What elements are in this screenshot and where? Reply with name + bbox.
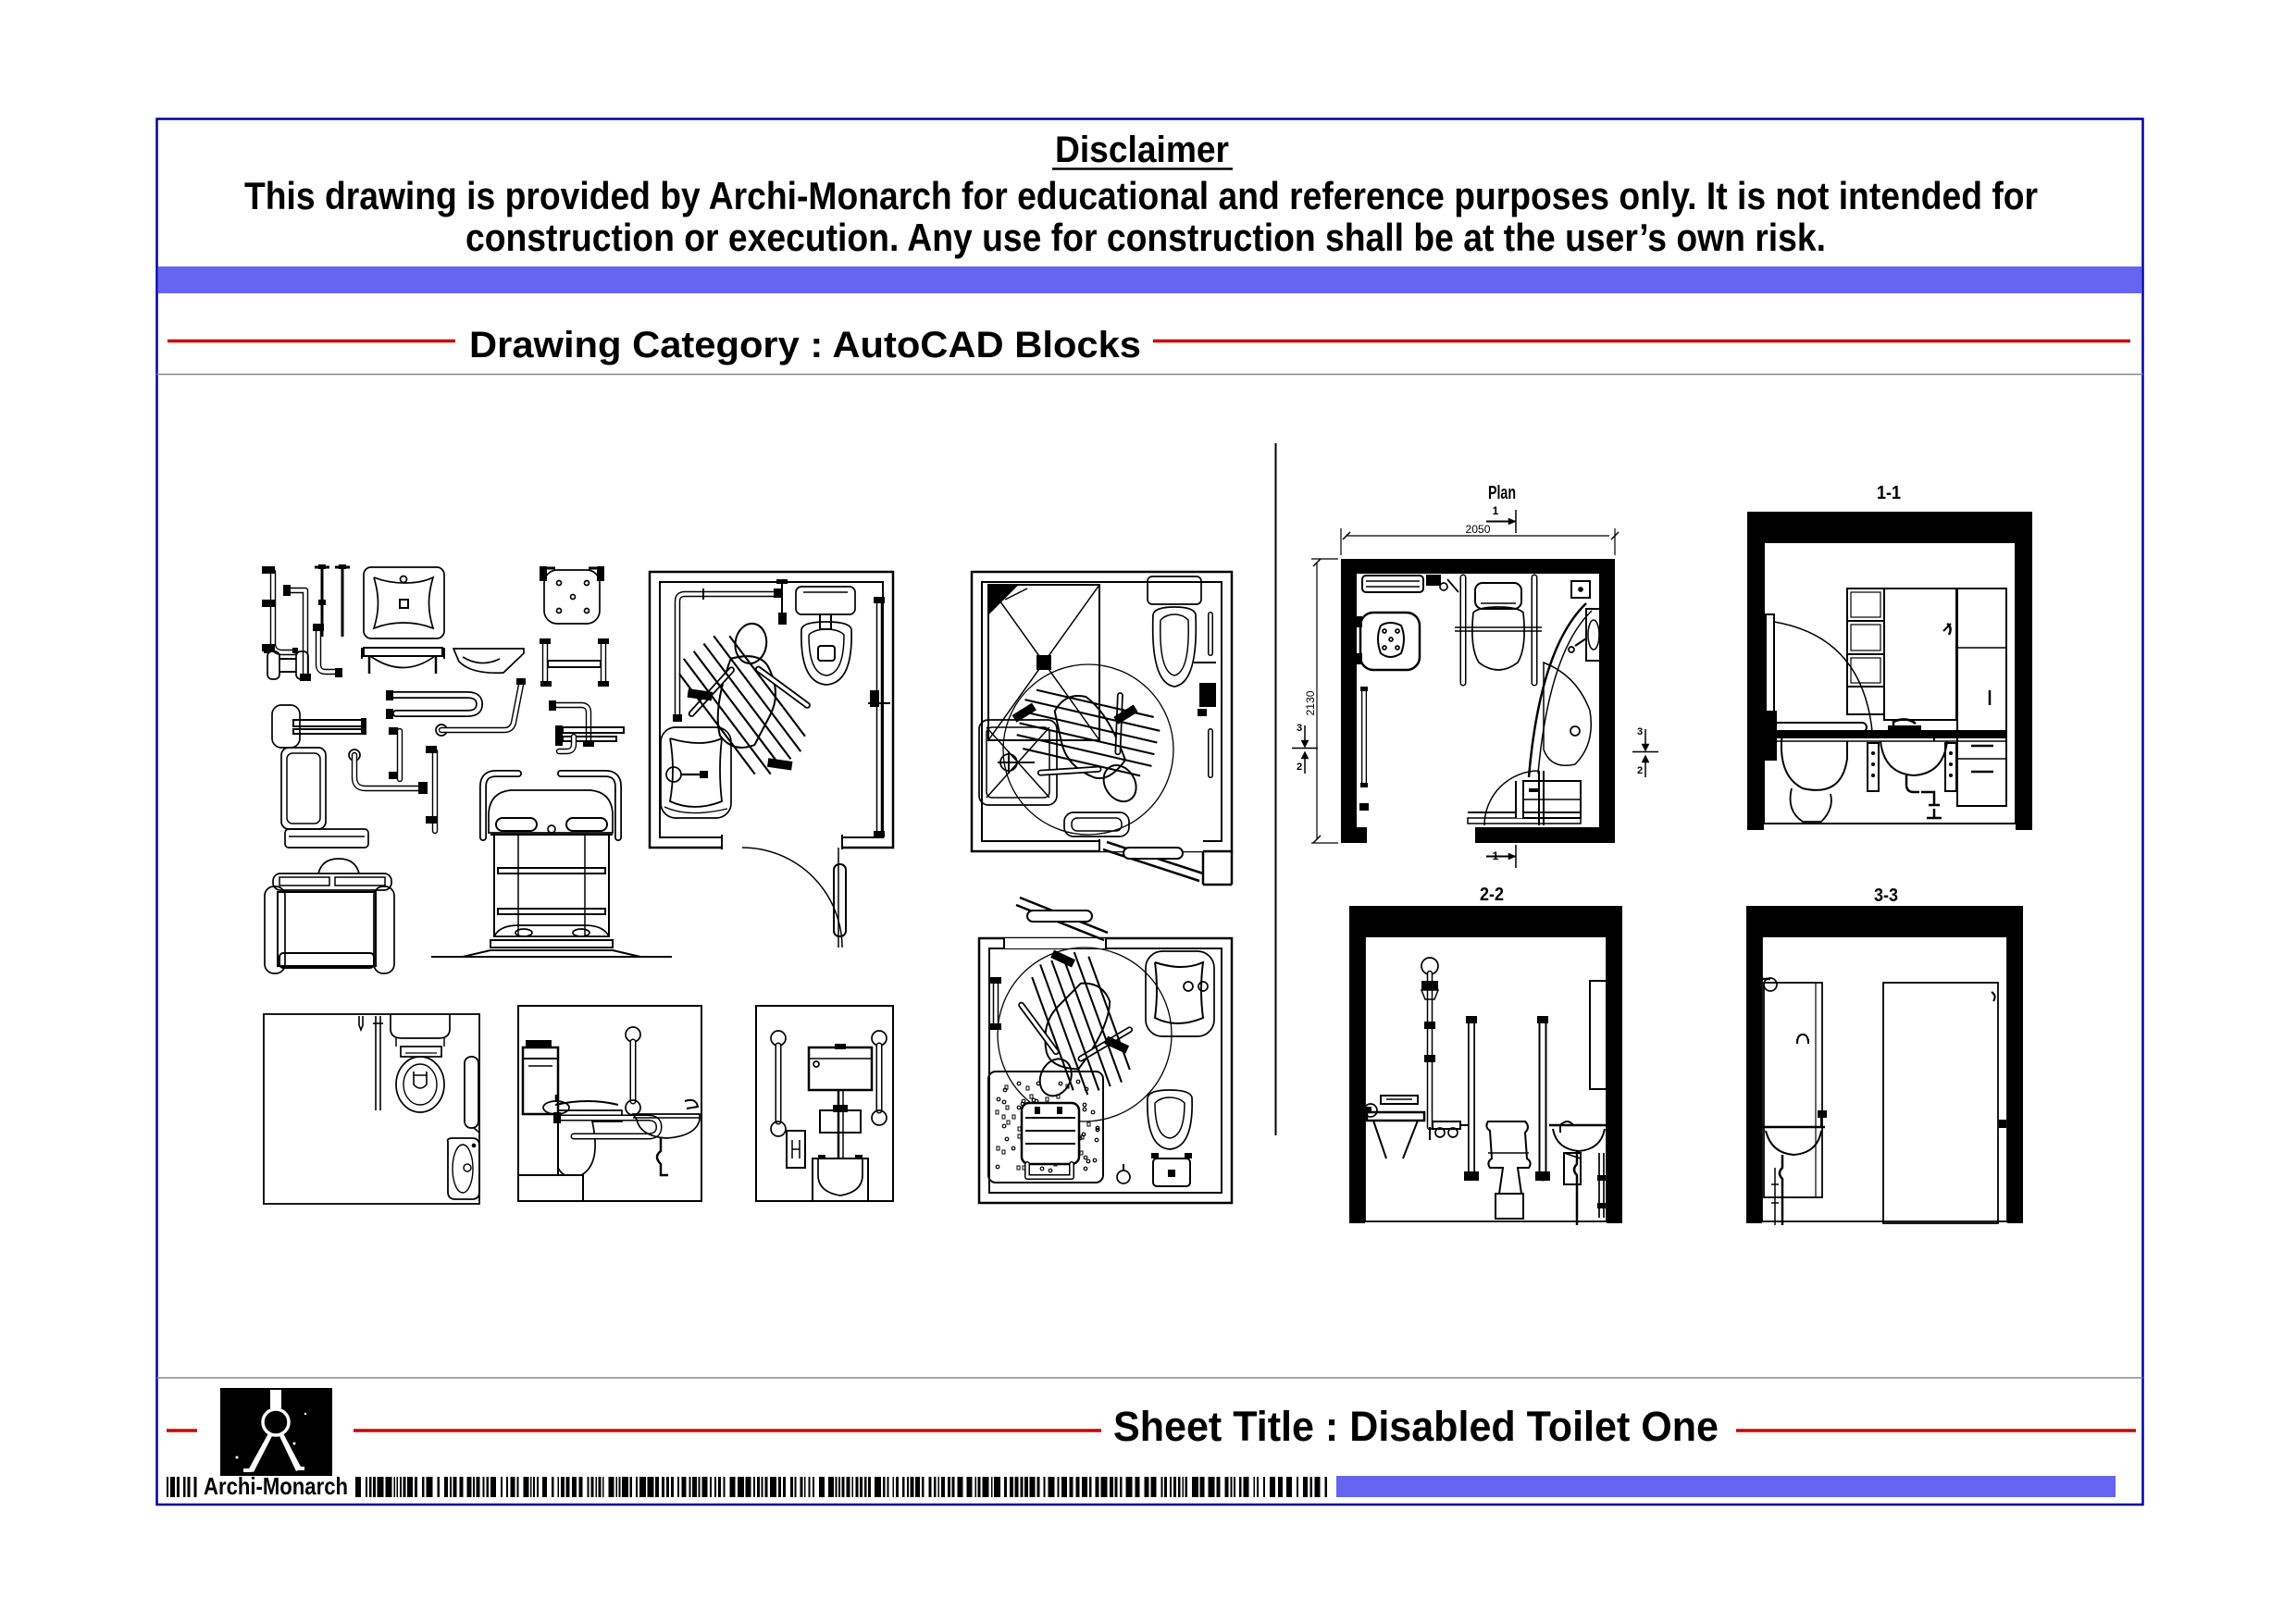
svg-text:Plan: Plan [1488, 483, 1516, 503]
svg-text:Archi-Monarch: Archi-Monarch [204, 1472, 348, 1500]
svg-text:2-2: 2-2 [1480, 885, 1504, 905]
svg-text:2050: 2050 [1466, 523, 1491, 536]
svg-text:1-1: 1-1 [1877, 483, 1901, 503]
svg-text:1: 1 [1493, 504, 1499, 517]
svg-text:2: 2 [1637, 765, 1643, 776]
svg-text:construction or execution. Any: construction or execution. Any use for c… [465, 216, 1826, 259]
svg-text:3-3: 3-3 [1874, 886, 1898, 906]
svg-text:2130: 2130 [1304, 690, 1317, 715]
svg-text:Drawing Category : AutoCAD Blo: Drawing Category : AutoCAD Blocks [469, 325, 1141, 365]
svg-text:This drawing is provided by Ar: This drawing is provided by Archi-Monarc… [244, 174, 2038, 217]
svg-text:2: 2 [1297, 762, 1302, 773]
svg-text:3: 3 [1297, 723, 1302, 734]
svg-text:Sheet Title : Disabled Toilet: Sheet Title : Disabled Toilet One [1113, 1403, 1719, 1450]
svg-text:3: 3 [1637, 726, 1643, 737]
svg-text:Disclaimer: Disclaimer [1055, 130, 1229, 170]
